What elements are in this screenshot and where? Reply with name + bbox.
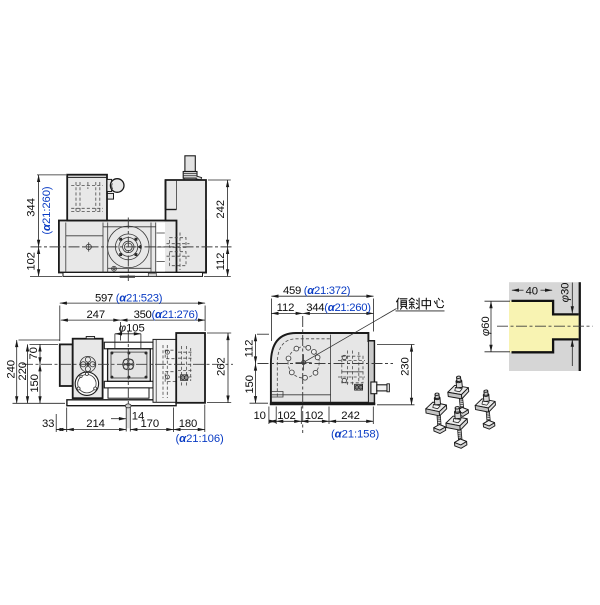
svg-text:10: 10 xyxy=(254,410,266,422)
svg-text:(α21:158): (α21:158) xyxy=(331,428,380,440)
svg-text:102: 102 xyxy=(25,252,37,271)
svg-text:150: 150 xyxy=(244,375,256,394)
svg-text:242: 242 xyxy=(215,200,227,219)
svg-text:112: 112 xyxy=(243,340,255,358)
svg-text:112: 112 xyxy=(215,253,227,271)
svg-text:70: 70 xyxy=(28,347,40,359)
svg-text:230: 230 xyxy=(399,357,411,376)
svg-text:220: 220 xyxy=(17,362,29,381)
svg-text:102: 102 xyxy=(305,410,324,422)
svg-text:40: 40 xyxy=(526,286,538,298)
svg-text:180: 180 xyxy=(179,418,198,430)
svg-text:φ30: φ30 xyxy=(560,283,572,303)
svg-text:262: 262 xyxy=(215,357,227,376)
svg-text:(α21:260): (α21:260) xyxy=(41,186,53,235)
svg-text:(α21:106): (α21:106) xyxy=(176,433,225,445)
svg-text:102: 102 xyxy=(277,410,296,422)
svg-text:112: 112 xyxy=(277,302,295,314)
svg-text:459 (α21:372): 459 (α21:372) xyxy=(283,285,351,297)
svg-text:150: 150 xyxy=(29,374,41,393)
svg-text:344: 344 xyxy=(25,198,37,217)
svg-text:247: 247 xyxy=(87,309,106,321)
svg-text:170: 170 xyxy=(141,418,160,430)
svg-text:350(α21:276): 350(α21:276) xyxy=(134,309,199,321)
svg-text:φ60: φ60 xyxy=(480,316,492,336)
svg-text:214: 214 xyxy=(86,418,105,430)
svg-text:597 (α21:523): 597 (α21:523) xyxy=(95,292,163,304)
svg-text:344(α21:260): 344(α21:260) xyxy=(306,302,371,314)
svg-text:φ105: φ105 xyxy=(119,323,145,335)
svg-text:242: 242 xyxy=(341,410,360,422)
svg-text:33: 33 xyxy=(42,418,54,430)
